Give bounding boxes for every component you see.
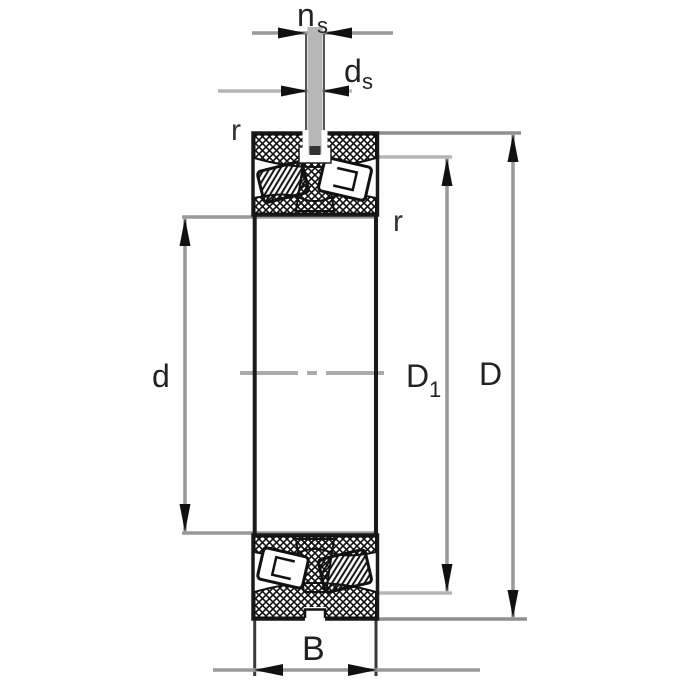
bearing-diagram: n s d s r r d D 1 D B [0, 0, 680, 680]
arrowhead-od-down [508, 590, 519, 618]
arrowhead-d-down [180, 504, 191, 532]
label-hole-diameter: d [344, 53, 362, 89]
label-inner-ring-chamfer: r [393, 205, 403, 238]
label-shoulder-diameter: D [406, 358, 429, 394]
arrowhead-b-right [348, 664, 377, 676]
label-groove-width: n [297, 0, 315, 33]
bearing-cross-section-drawing: n s d s r r d D 1 D B [0, 0, 680, 680]
bearing-section-bottom [253, 535, 378, 621]
label-hole-diameter-sub: s [362, 69, 373, 94]
arrowhead-d1-up [442, 158, 453, 186]
label-bore-diameter: d [152, 358, 170, 394]
arrowhead-ds-left [281, 86, 309, 97]
label-shoulder-diameter-sub: 1 [429, 377, 441, 402]
bearing-section-top [253, 130, 378, 215]
arrowhead-b-left [254, 664, 283, 676]
arrowhead-d1-down [442, 564, 453, 592]
lubrication-hole-bottom [310, 146, 321, 155]
label-groove-width-sub: s [317, 13, 328, 38]
label-outside-diameter: D [479, 356, 502, 392]
arrowhead-ns-right [324, 28, 352, 39]
arrowhead-d-up [180, 218, 191, 246]
label-outer-ring-chamfer: r [231, 114, 241, 147]
arrowhead-od-up [508, 134, 519, 162]
label-width: B [302, 630, 325, 668]
